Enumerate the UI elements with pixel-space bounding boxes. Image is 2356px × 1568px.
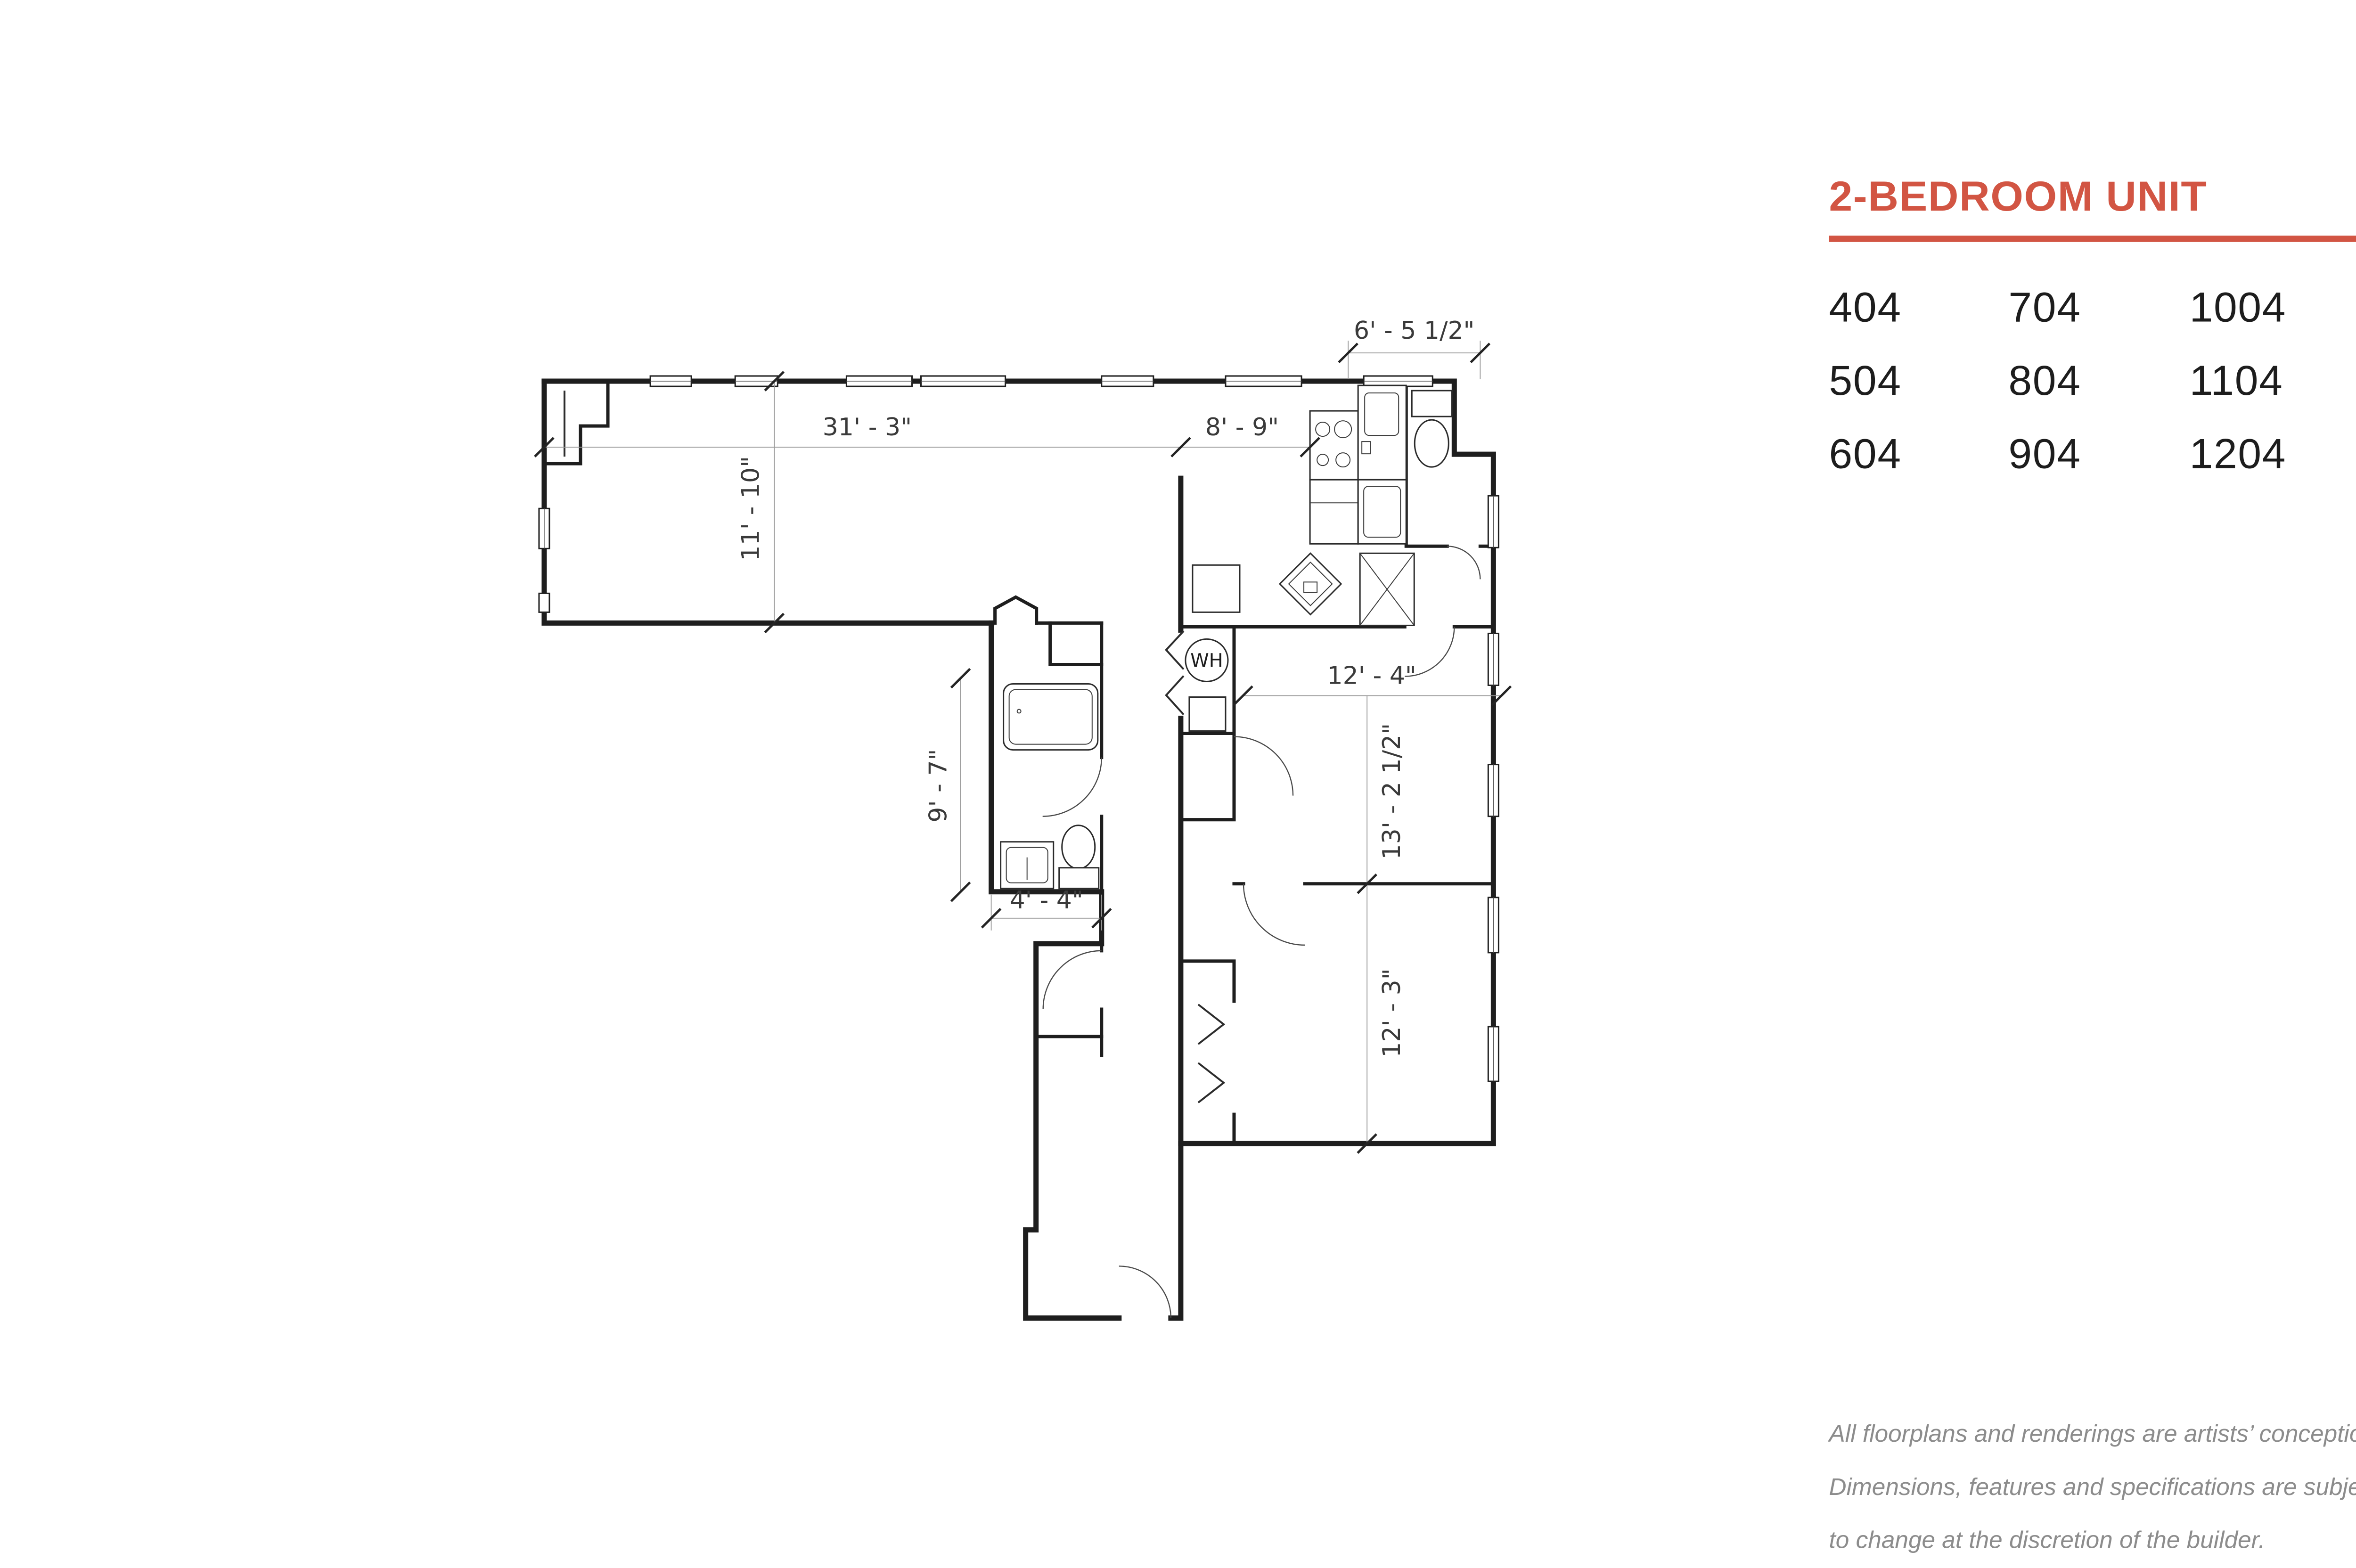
bathroom-door-arc <box>1043 758 1102 817</box>
hall-closet-door-arc <box>1043 951 1102 1009</box>
unit-number: 804 <box>2008 357 2189 405</box>
shaft-x-icon <box>1360 553 1414 625</box>
closet-bifold-icon <box>1198 1004 1224 1102</box>
bedroom2-door-arc <box>1243 884 1305 945</box>
dim-bath-width: 4' - 4" <box>1010 886 1083 915</box>
window <box>1488 1027 1498 1081</box>
window <box>1226 376 1301 386</box>
window <box>1488 496 1498 547</box>
interior-walls <box>995 383 1494 1143</box>
unit-number: 604 <box>1829 430 2009 479</box>
bathroom-sink-icon <box>1001 842 1054 889</box>
window <box>1488 898 1498 953</box>
window <box>539 593 549 612</box>
dim-living-width: 31' - 3" <box>823 413 912 441</box>
disclaimer-line: Dimensions, features and specifications … <box>1829 1462 2356 1515</box>
unit-number: 1204 <box>2190 430 2356 479</box>
disclaimer-line: to change at the discretion of the build… <box>1829 1515 2356 1568</box>
dim-living-depth: 11' - 10" <box>736 456 765 561</box>
dim-kitchen-width: 8' - 9" <box>1205 413 1279 441</box>
refrigerator-icon <box>1193 565 1240 612</box>
floorplan-drawing: WH <box>509 320 1575 1414</box>
dishwasher-icon <box>1358 480 1406 544</box>
window <box>650 376 691 386</box>
powder-door-arc <box>1447 546 1480 579</box>
dim-bedroom1-width: 12' - 4" <box>1327 661 1416 690</box>
disclaimer: All floorplans and renderings are artist… <box>1829 1409 2356 1568</box>
unit-number: 1104 <box>2190 357 2356 405</box>
disclaimer-line: All floorplans and renderings are artist… <box>1829 1409 2356 1462</box>
dim-bath-depth: 9' - 7" <box>924 749 953 823</box>
hall-arch-niche <box>995 597 1037 623</box>
window <box>1488 765 1498 817</box>
bathroom <box>1001 684 1099 888</box>
dim-nook-width: 6' - 5 1/2" <box>1354 320 1475 345</box>
unit-number-grid: 404 704 1004 504 804 1104 604 904 1204 <box>1829 284 2356 479</box>
water-heater-label: WH <box>1190 650 1223 671</box>
unit-number: 904 <box>2008 430 2189 479</box>
title-block: 2-BEDROOM UNIT 404 704 1004 504 804 1104… <box>1829 175 2356 479</box>
unit-number: 504 <box>1829 357 2009 405</box>
powder-room <box>1412 391 1452 467</box>
louver-door-icon <box>1166 631 1184 714</box>
water-heater-closet: WH <box>1166 631 1228 731</box>
utility-box <box>1189 697 1226 731</box>
dim-bedroom1-depth: 13' - 2 1/2" <box>1378 723 1406 860</box>
page: WH <box>0 0 2356 1559</box>
powder-toilet-icon <box>1412 391 1452 467</box>
bathtub-icon <box>1004 684 1098 750</box>
entry-door-arc <box>1119 1266 1171 1318</box>
window <box>846 376 912 386</box>
unit-number: 704 <box>2008 284 2189 332</box>
kitchen-counter <box>1310 480 1358 544</box>
toilet-icon <box>1059 825 1099 889</box>
unit-number: 404 <box>1829 284 2009 332</box>
page-title: 2-BEDROOM UNIT <box>1829 175 2356 221</box>
dim-bedroom2-depth: 12' - 3" <box>1378 968 1406 1057</box>
kitchen-sink-icon <box>1358 385 1406 480</box>
stove-icon <box>1310 411 1358 480</box>
window <box>921 376 1006 386</box>
window <box>1488 633 1498 685</box>
corner-step <box>547 383 608 464</box>
title-rule <box>1829 235 2356 241</box>
walkin-closet-door-arc <box>1234 737 1293 796</box>
window <box>539 508 549 548</box>
unit-number: 1004 <box>2190 284 2356 332</box>
kitchen-island-icon <box>1280 553 1341 614</box>
window <box>1102 376 1153 386</box>
